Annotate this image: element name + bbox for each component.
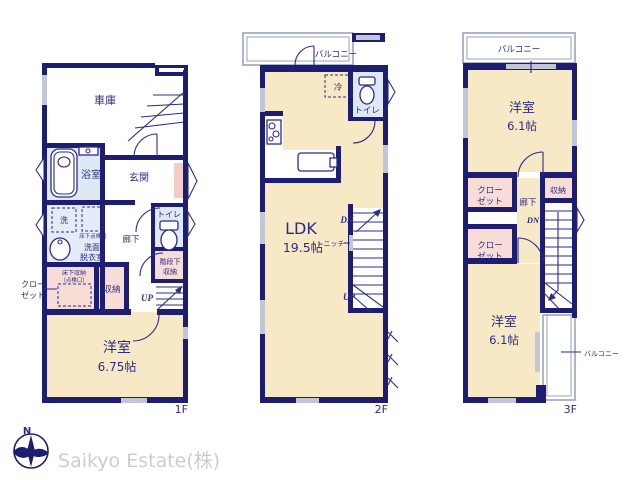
toilet-label-2f: トイレ bbox=[354, 106, 380, 116]
storage-label-3f: 収納 bbox=[550, 185, 566, 195]
window-stairs-3f-icon bbox=[577, 208, 584, 232]
toilet-tank-2f-icon bbox=[359, 77, 375, 85]
closet-b-label-2: ゼット bbox=[477, 251, 503, 262]
window-toilet-2f-icon bbox=[388, 80, 395, 104]
compass-icon: N bbox=[13, 426, 49, 468]
fridge-label: 冷 bbox=[334, 82, 343, 93]
toilet-tank-1f-icon bbox=[160, 221, 178, 230]
window-2f-topright bbox=[356, 35, 380, 40]
balcony-label-3f-side: バルコニー bbox=[584, 350, 619, 358]
dn-label-2f: DN bbox=[340, 215, 354, 225]
bedroom-bottom-3f bbox=[468, 264, 540, 397]
bedroom-label-1f: 洋室 bbox=[103, 339, 131, 356]
washroom-label-1: 洗面 bbox=[84, 242, 100, 252]
hallway-label-3f: 廊下 bbox=[519, 197, 537, 208]
bedroom-bottom-size: 6.1帖 bbox=[489, 333, 519, 347]
balcony-3f-side-rect bbox=[543, 315, 575, 400]
bathtub-icon bbox=[51, 149, 77, 197]
window-bedroom-bottom bbox=[121, 398, 147, 403]
floorplan-svg: 車庫 浴室 玄関 洗 床下点検口 洗面 脱衣室 廊下 トイレ 階段下 収納 UP… bbox=[0, 0, 640, 480]
window-garage-left bbox=[42, 75, 47, 105]
bedroom-size-1f: 6.75帖 bbox=[98, 359, 137, 374]
louver-window-bath-icon bbox=[36, 158, 44, 182]
closet-label-1f-1: クロー bbox=[21, 280, 45, 289]
footer: N Saikyo Estate(株) bbox=[13, 426, 220, 472]
window-toilet-right-icon bbox=[188, 212, 195, 236]
floor-label-3f: 3F bbox=[564, 403, 577, 416]
toilet-label-1f: トイレ bbox=[157, 210, 181, 219]
toilet-bowl-2f-icon bbox=[360, 86, 374, 104]
window-bedroom-right bbox=[183, 327, 188, 339]
balcony-label-3f-top: バルコニー bbox=[498, 45, 540, 55]
closet-label-1f-2: ゼット bbox=[21, 290, 45, 300]
kitchen-faucet-icon bbox=[330, 158, 337, 167]
entrance-mat bbox=[174, 163, 183, 198]
front-door-icon bbox=[188, 163, 197, 199]
bedroom-top-size: 6.1帖 bbox=[507, 119, 537, 133]
dn-label-3f: DN bbox=[526, 215, 540, 225]
understair-label-1: 階段下 bbox=[160, 257, 181, 266]
floor-1f: 車庫 浴室 玄関 洗 床下点検口 洗面 脱衣室 廊下 トイレ 階段下 収納 UP… bbox=[21, 63, 197, 416]
washroom-label-2: 脱衣室 bbox=[80, 252, 104, 262]
bath-counter-icon bbox=[79, 147, 98, 155]
kitchen-sink-icon bbox=[298, 153, 334, 171]
underfloor-hatch-label: 床下点検口 bbox=[79, 232, 107, 240]
floor-label-1f: 1F bbox=[175, 403, 188, 416]
balcony-label-2f: バルコニー bbox=[315, 50, 357, 60]
closet-a-label-2: ゼット bbox=[477, 196, 503, 207]
storage-label-1f: 収納 bbox=[103, 284, 120, 295]
toilet-bowl-1f-icon bbox=[161, 230, 177, 250]
vent-marks-2f bbox=[388, 331, 398, 388]
company-name: Saikyo Estate(株) bbox=[58, 450, 220, 472]
floor-3f: バルコニー 洋室 6.1帖 クロー ゼット 廊下 収納 DN クロー ゼット 洋… bbox=[463, 33, 619, 416]
hallway-label-1f: 廊下 bbox=[122, 234, 140, 245]
louver-window-washroom-icon bbox=[36, 213, 44, 237]
bedroom-bottom-label: 洋室 bbox=[491, 314, 517, 330]
closet-a-label-1: クロー bbox=[477, 186, 503, 196]
closet-b-label-1: クロー bbox=[477, 241, 503, 251]
washbasin-icon bbox=[50, 238, 70, 260]
entrance-label: 玄関 bbox=[129, 171, 149, 184]
floor-2f: バルコニー 冷 トイレ LDK 19.5帖 ニッチ DN UP 2F bbox=[243, 33, 398, 416]
underfloor-storage-label-1: 床下収納 bbox=[62, 269, 86, 277]
washer-label: 洗 bbox=[60, 215, 68, 225]
underfloor-storage-label-2: （点検口） bbox=[60, 276, 88, 284]
ldk-size-label: 19.5帖 bbox=[283, 240, 323, 255]
floor-label-2f: 2F bbox=[375, 403, 388, 416]
understair-storage-room bbox=[155, 251, 183, 281]
bathroom-label: 浴室 bbox=[81, 168, 101, 181]
niche-label: ニッチ bbox=[324, 240, 345, 248]
compass-north-label: N bbox=[23, 426, 31, 437]
balcony-2f-rect bbox=[243, 33, 353, 65]
up-label-1f: UP bbox=[141, 293, 153, 303]
ldk-label: LDK bbox=[285, 219, 317, 238]
floorplan-sheet: 車庫 浴室 玄関 洗 床下点検口 洗面 脱衣室 廊下 トイレ 階段下 収納 UP… bbox=[0, 0, 640, 480]
bedroom-top-label: 洋室 bbox=[509, 100, 535, 116]
garage-label: 車庫 bbox=[94, 93, 116, 107]
understair-label-2: 収納 bbox=[163, 267, 177, 276]
up-label-2f: UP bbox=[343, 292, 355, 302]
